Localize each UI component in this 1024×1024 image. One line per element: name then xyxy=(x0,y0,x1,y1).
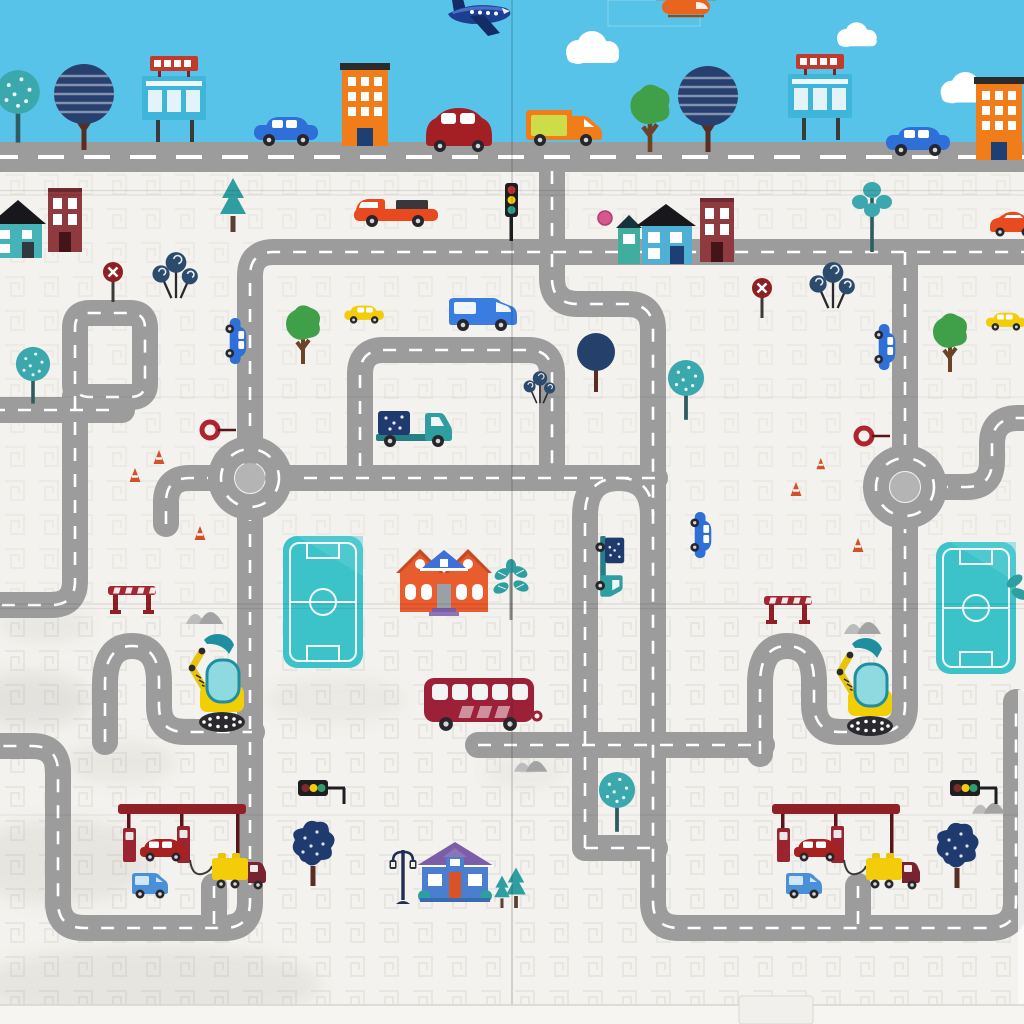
mat-edge-tab xyxy=(739,996,813,1024)
mat-right-edge xyxy=(1018,690,1024,1024)
swimming-pool-left xyxy=(283,536,363,668)
maroon-tower-left xyxy=(48,188,82,252)
pink-balloon-dot xyxy=(598,211,612,225)
play-mat-scene xyxy=(0,0,1024,1024)
orange-tower-left xyxy=(340,63,390,146)
orange-tower-right xyxy=(974,77,1024,160)
roundabout-left xyxy=(221,449,279,507)
maroon-tower-right xyxy=(700,198,734,262)
roundabout-right xyxy=(876,458,934,516)
red-manor-house xyxy=(396,549,492,616)
mat-bottom-edge xyxy=(0,1005,1024,1024)
play-mat-photo xyxy=(0,0,1024,1024)
